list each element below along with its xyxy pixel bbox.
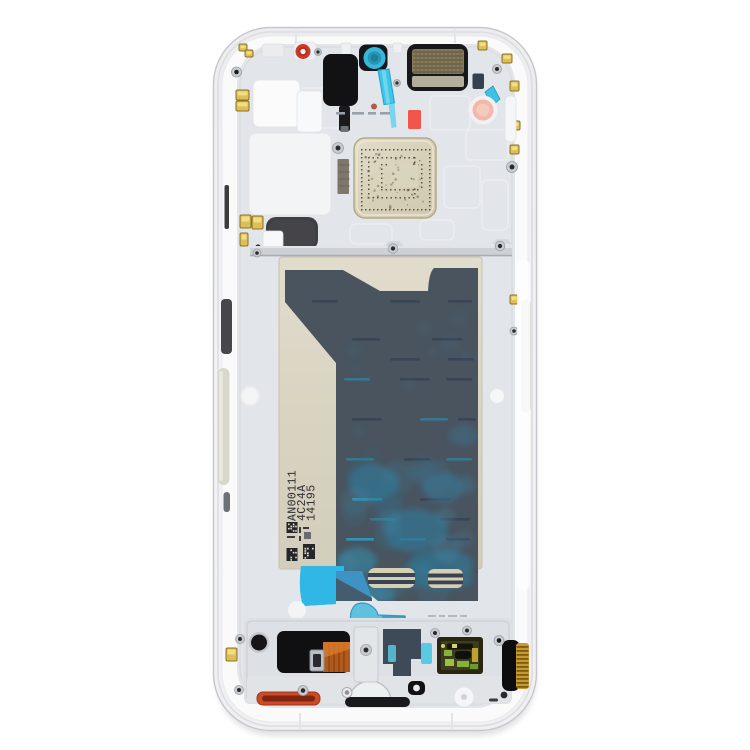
svg-text:14195: 14195: [306, 484, 319, 521]
